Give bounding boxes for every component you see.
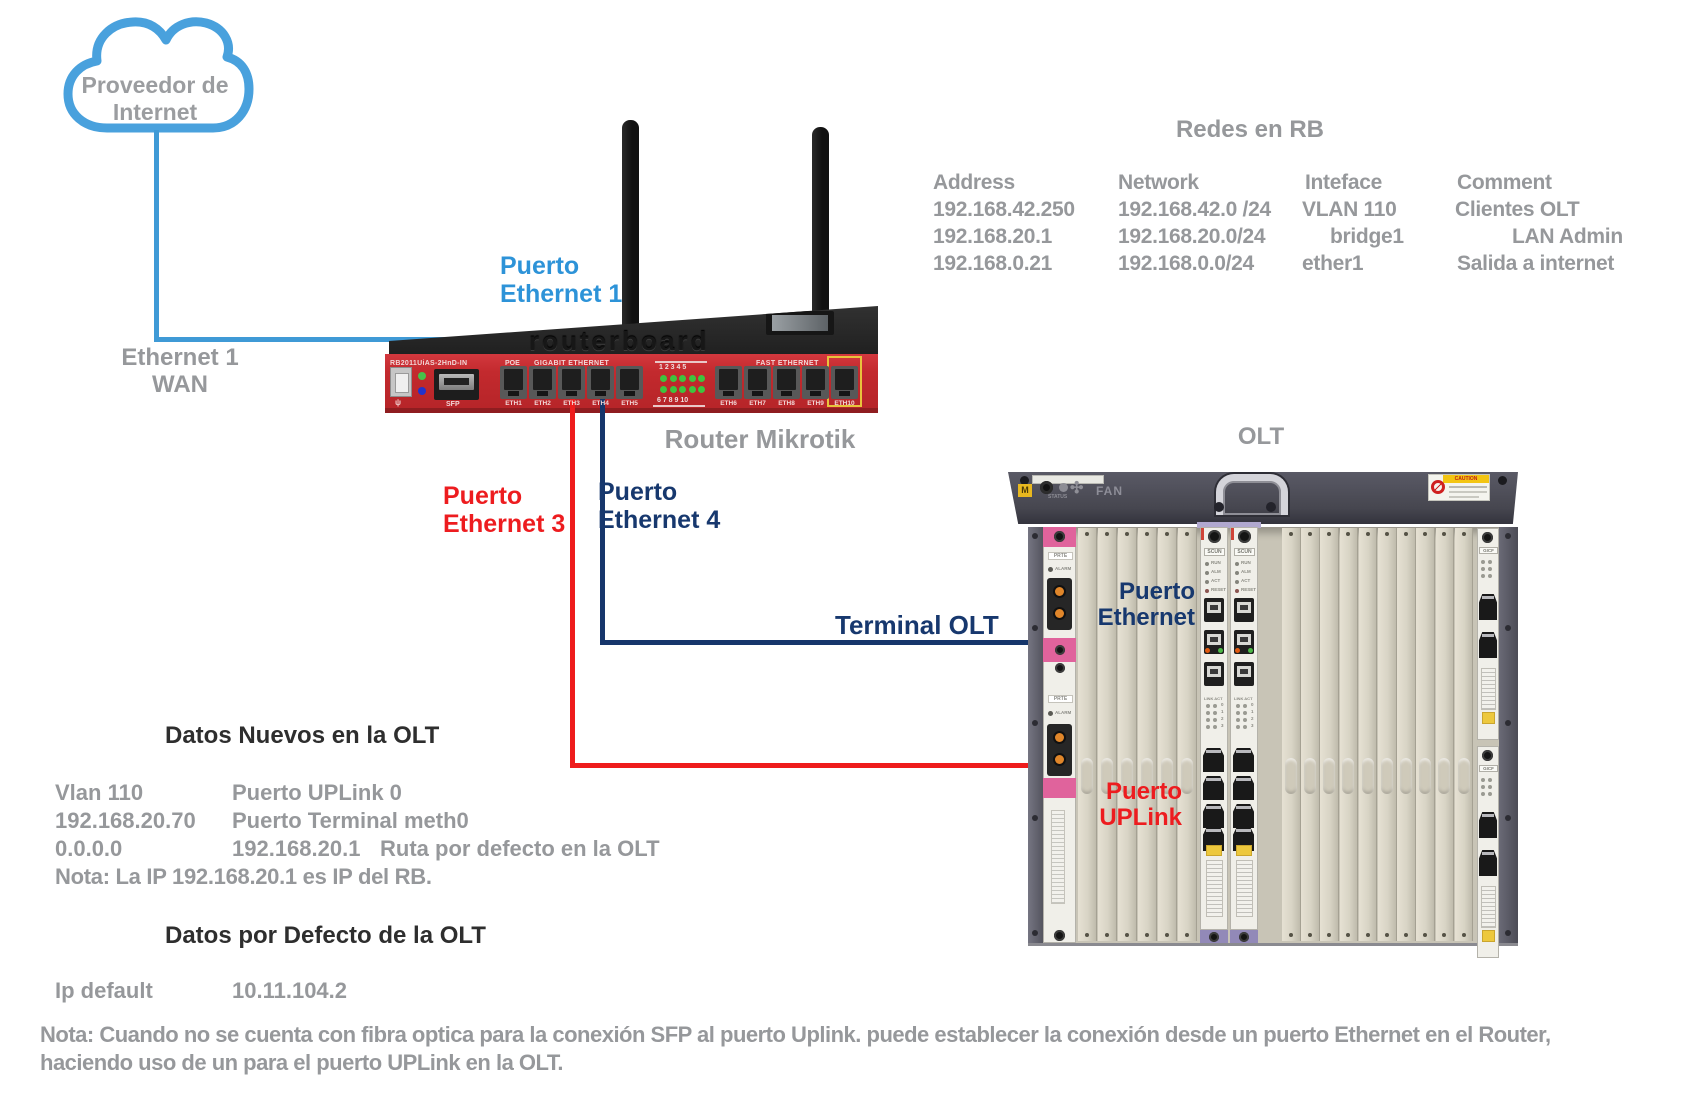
- scun-eth-port-slot: [1240, 637, 1248, 642]
- scun-linkact-label: LINK ACT: [1204, 696, 1223, 701]
- scun-led-label: RESET: [1241, 587, 1256, 592]
- datos-cell-r0c1: Vlan 110: [55, 780, 143, 806]
- scun-bottom-knob: [1209, 932, 1219, 942]
- rail-screw: [1032, 815, 1038, 821]
- router-port-label: ETH10: [827, 400, 862, 407]
- port3-label-line2: Ethernet 3: [443, 510, 565, 539]
- router-led-green: [418, 372, 426, 380]
- slat-screw: [1165, 532, 1169, 536]
- slat-handle: [1323, 758, 1335, 794]
- scun-led-dot: [1205, 580, 1209, 584]
- slat-screw: [1404, 532, 1408, 536]
- scun-led-label: ACT: [1241, 578, 1250, 583]
- gicf-grid-dot: [1488, 567, 1492, 571]
- slat-screw: [1385, 532, 1389, 536]
- slat-screw: [1125, 532, 1129, 536]
- scun-grid-num: 2: [1221, 716, 1224, 721]
- olt-status-led: [1059, 483, 1068, 492]
- slat-screw: [1366, 933, 1370, 937]
- scun-grid-num: 0: [1221, 702, 1224, 707]
- router-led-dot: [670, 375, 677, 382]
- slat-screw: [1462, 532, 1466, 536]
- slat-handle: [1181, 758, 1193, 794]
- slat-screw: [1165, 933, 1169, 937]
- scun-led-dot: [1235, 580, 1239, 584]
- scun-led-dot: [1205, 589, 1209, 593]
- olt-eth-label-line1: Puerto: [1040, 578, 1195, 606]
- gicf-laser-label: [1482, 712, 1495, 724]
- olt-top-bar: M STATUS ✣ FAN CAUTION: [1008, 472, 1518, 524]
- scun-eth-port-slot: [1240, 605, 1248, 610]
- rail-screw: [1505, 533, 1511, 539]
- led-bracket-bottom: [653, 405, 705, 407]
- redes-cell-r2c0: 192.168.0.21: [933, 252, 1052, 276]
- slat-handle: [1458, 758, 1470, 794]
- fast-port-eth7: [744, 366, 771, 399]
- scun-sfp-module: [1233, 804, 1254, 828]
- slat-handle: [1438, 758, 1450, 794]
- olt-logo-mark: M: [1018, 484, 1032, 497]
- scun-sfp-module: [1203, 748, 1224, 772]
- datos-cell-r0c2: Puerto UPLink 0: [232, 780, 402, 806]
- scun-grid-dot: [1243, 718, 1247, 722]
- fast-port-eth8: [773, 366, 800, 399]
- olt-status-label: STATUS: [1048, 494, 1067, 500]
- power-alarm-led: [1048, 711, 1053, 716]
- gicf-sfp-module: [1479, 812, 1497, 838]
- scun-grid-dot: [1243, 711, 1247, 715]
- slat-screw: [1185, 933, 1189, 937]
- scun-grid-dot: [1213, 704, 1217, 708]
- scun-grid-dot: [1236, 725, 1240, 729]
- router-model-label: RB2011UiAS-2HnD-IN: [390, 360, 467, 367]
- router-led-numbers-bottom: 6 7 8 9 10: [657, 397, 688, 404]
- redes-cell-r0c1: 192.168.42.0 /24: [1118, 198, 1271, 222]
- slat-handle: [1362, 758, 1374, 794]
- caution-text: CAUTION: [1443, 475, 1489, 483]
- rail-screw: [1032, 533, 1038, 539]
- router-port-label: ETH5: [612, 400, 647, 407]
- network-diagram: Proveedor de Internet Ethernet 1 WAN Pue…: [0, 0, 1700, 1100]
- slat-handle: [1381, 758, 1393, 794]
- port1-label-line2: Ethernet 1: [500, 280, 622, 309]
- gicf-grid-dot: [1488, 560, 1492, 564]
- scun-tag: [1231, 528, 1234, 540]
- redes-header-2: Inteface: [1305, 171, 1382, 195]
- router-brand-script: MikroTik: [532, 317, 573, 328]
- caution-label: CAUTION: [1428, 474, 1490, 501]
- scun-led-label: ALM: [1211, 569, 1221, 574]
- router-led-dot: [689, 375, 696, 382]
- fan-icon: ✣: [1070, 478, 1083, 498]
- scun-grid-num: 0: [1251, 702, 1254, 707]
- rail-screw: [1505, 625, 1511, 631]
- slat-screw: [1308, 532, 1312, 536]
- olt-blank-slat: [1359, 528, 1378, 941]
- scun-grid-dot: [1213, 711, 1217, 715]
- slat-screw: [1105, 933, 1109, 937]
- slat-screw: [1462, 933, 1466, 937]
- slat-handle: [1285, 758, 1297, 794]
- scun-led-label: RUN: [1211, 560, 1221, 565]
- olt-blank-slat: [1340, 528, 1359, 941]
- olt-blank-slat: [1397, 528, 1416, 941]
- router-antenna-right: [812, 127, 829, 319]
- slat-screw: [1085, 933, 1089, 937]
- scun-label: SCUN: [1234, 548, 1255, 556]
- scun-led-label: RESET: [1211, 587, 1226, 592]
- power-alarm-led: [1048, 567, 1053, 572]
- scun-led-dot: [1235, 589, 1239, 593]
- rail-screw: [1505, 815, 1511, 821]
- scun-grid-dot: [1236, 711, 1240, 715]
- slat-handle: [1400, 758, 1412, 794]
- terminal-olt-label: Terminal OLT: [835, 610, 999, 641]
- slat-screw: [1289, 933, 1293, 937]
- slat-screw: [1289, 532, 1293, 536]
- gicf-grid-dot: [1488, 574, 1492, 578]
- slat-screw: [1145, 933, 1149, 937]
- fast-port-eth9: [802, 366, 829, 399]
- router-led-blue: [418, 387, 426, 395]
- olt-rail-right: [1499, 527, 1518, 945]
- gicf-barcode: [1481, 886, 1496, 928]
- rail-screw: [1505, 930, 1511, 936]
- redes-cell-r0c0: 192.168.42.250: [933, 198, 1075, 222]
- olt-uplink-label-line1: Puerto: [1040, 778, 1182, 806]
- redes-header-0: Address: [933, 171, 1015, 195]
- olt-blank-slat: [1455, 528, 1474, 941]
- scun-eth-port-slot: [1210, 669, 1218, 674]
- datos-nuevos-title: Datos Nuevos en la OLT: [165, 722, 439, 750]
- scun-grid-dot: [1213, 718, 1217, 722]
- power-prte-label: PRTE: [1048, 695, 1073, 703]
- slat-screw: [1105, 532, 1109, 536]
- datos-cell-r2c2: 192.168.20.1: [232, 836, 360, 862]
- fast-port-eth6: [715, 366, 742, 399]
- redes-cell-r1c1: 192.168.20.0/24: [1118, 225, 1265, 249]
- gicf-grid-dot: [1488, 792, 1492, 796]
- scun-eth-port-slot: [1210, 637, 1218, 642]
- gicf-grid-dot: [1481, 574, 1485, 578]
- slat-screw: [1404, 933, 1408, 937]
- gicf-grid-dot: [1481, 560, 1485, 564]
- scun-grid-dot: [1236, 718, 1240, 722]
- olt-eth-label-line2: Ethernet: [1040, 604, 1195, 632]
- power-knob: [1054, 531, 1065, 542]
- redes-cell-r1c2: bridge1: [1330, 225, 1404, 249]
- scun-led-label: ALM: [1241, 569, 1251, 574]
- scun-port-led-green: [1218, 648, 1223, 653]
- bottom-note-line1: Nota: Cuando no se cuenta con fibra opti…: [40, 1022, 1551, 1048]
- scun-grid-num: 2: [1251, 716, 1254, 721]
- eth3-line-vertical: [570, 399, 575, 768]
- router-sfp-label: SFP: [446, 401, 460, 408]
- gicf-sfp-module: [1479, 850, 1497, 876]
- gicf-grid-dot: [1481, 778, 1485, 782]
- gigabit-port-eth5: [616, 366, 643, 399]
- scun-grid-dot: [1206, 718, 1210, 722]
- bottom-note-line2: haciendo uso de un para el puerto UPLink…: [40, 1050, 563, 1076]
- datos-defecto-title: Datos por Defecto de la OLT: [165, 922, 486, 950]
- scun-grid-dot: [1206, 725, 1210, 729]
- olt-jack: [1040, 481, 1053, 494]
- scun-grid-dot: [1206, 711, 1210, 715]
- slat-screw: [1145, 532, 1149, 536]
- olt-handle: [1216, 474, 1288, 515]
- scun-linkact-label: LINK ACT: [1234, 696, 1253, 701]
- scun-eth-port-slot: [1210, 605, 1218, 610]
- gigabit-port-eth2: [529, 366, 556, 399]
- led-bracket-top: [655, 361, 707, 363]
- gicf-label: GICF: [1479, 765, 1498, 772]
- port4-label-line2: Ethernet 4: [598, 506, 720, 535]
- wan-line-vertical: [154, 130, 159, 340]
- redes-cell-r1c3: LAN Admin: [1512, 225, 1623, 249]
- slat-screw: [1185, 532, 1189, 536]
- wan-label-line2: WAN: [105, 371, 255, 399]
- olt-blank-slat: [1416, 528, 1435, 941]
- slat-screw: [1308, 933, 1312, 937]
- gicf-knob: [1482, 750, 1493, 761]
- gicf-grid-dot: [1488, 778, 1492, 782]
- redes-cell-r2c1: 192.168.0.0/24: [1118, 252, 1254, 276]
- scun-led-label: RUN: [1241, 560, 1251, 565]
- rail-screw: [1032, 625, 1038, 631]
- gicf-grid-dot: [1488, 785, 1492, 789]
- router-antenna-left: [622, 120, 639, 332]
- scun-sfp-module: [1203, 804, 1224, 828]
- router-sfp-cage: [434, 369, 479, 400]
- scun-sfp-module: [1233, 748, 1254, 772]
- slat-handle: [1342, 758, 1354, 794]
- scun-laser-label: [1206, 845, 1222, 856]
- datos-cell-r2c3: Ruta por defecto en la OLT: [380, 836, 660, 862]
- gigabit-port-eth1: [500, 366, 527, 399]
- slat-screw: [1385, 933, 1389, 937]
- scun-knob: [1208, 530, 1221, 543]
- ip-default-value: 10.11.104.2: [232, 978, 347, 1004]
- gicf-label: GICF: [1479, 547, 1498, 554]
- router-brand-embossed: routerboard: [529, 326, 709, 357]
- router-usb-port: [390, 367, 412, 397]
- scun-grid-dot: [1243, 725, 1247, 729]
- scun-grid-dot: [1213, 725, 1217, 729]
- gicf-sfp-module: [1479, 594, 1497, 620]
- slat-screw: [1125, 933, 1129, 937]
- scun-grid-num: 3: [1221, 723, 1224, 728]
- scun-tag: [1201, 528, 1204, 540]
- gicf-grid-dot: [1481, 792, 1485, 796]
- redes-cell-r2c2: ether1: [1302, 252, 1363, 276]
- olt-blank-slat: [1282, 528, 1301, 941]
- power-alarm-label: ALARM: [1055, 566, 1071, 571]
- olt-uplink-label-line2: UPLink: [1040, 804, 1182, 832]
- scun-bottom-knob: [1239, 932, 1249, 942]
- router-led-dot: [670, 386, 677, 393]
- olt-caption: OLT: [1221, 423, 1301, 451]
- gicf-grid-dot: [1481, 785, 1485, 789]
- scun-port-led-green: [1248, 648, 1253, 653]
- scun-label: SCUN: [1204, 548, 1225, 556]
- scun-led-label: ACT: [1211, 578, 1220, 583]
- redes-header-1: Network: [1118, 171, 1199, 195]
- usb-icon: ψ: [395, 398, 401, 407]
- ip-default-label: Ip default: [55, 978, 153, 1004]
- datos-cell-r2c1: 0.0.0.0: [55, 836, 122, 862]
- scun-knob: [1238, 530, 1251, 543]
- wan-label-line1: Ethernet 1: [105, 344, 255, 372]
- power-knob: [1055, 645, 1065, 655]
- power-knob: [1055, 663, 1065, 673]
- slat-screw: [1085, 532, 1089, 536]
- port1-label-line1: Puerto: [500, 252, 579, 281]
- gicf-sfp-module: [1479, 632, 1497, 658]
- scun-grid-dot: [1236, 704, 1240, 708]
- router-led-dot: [660, 386, 667, 393]
- olt-blank-slat: [1320, 528, 1339, 941]
- olt-blank-slat: [1378, 528, 1397, 941]
- gigabit-port-eth4: [587, 366, 614, 399]
- redes-cell-r0c3: Clientes OLT: [1455, 198, 1579, 222]
- power-prte-label: PRTE: [1048, 552, 1073, 560]
- scun-eth-port-slot: [1240, 669, 1248, 674]
- datos-cell-r1c1: 192.168.20.70: [55, 808, 196, 834]
- olt-fan-label: FAN: [1096, 484, 1123, 498]
- router-led-dot: [689, 386, 696, 393]
- port3-label-line1: Puerto: [443, 482, 522, 511]
- gicf-laser-label: [1482, 930, 1495, 942]
- scun-grid-dot: [1243, 704, 1247, 708]
- scun-grid-num: 1: [1221, 709, 1224, 714]
- fast-port-eth10: [831, 366, 858, 399]
- scun-barcode: [1206, 860, 1223, 917]
- power-socket: [1055, 755, 1064, 764]
- power-alarm-label: ALARM: [1055, 710, 1071, 715]
- slat-screw: [1366, 532, 1370, 536]
- scun-grid-num: 3: [1251, 723, 1254, 728]
- router-screen: [766, 311, 834, 335]
- redes-table-title: Redes en RB: [1120, 116, 1380, 144]
- rail-screw: [1032, 720, 1038, 726]
- scun-port-led-orange: [1205, 648, 1210, 653]
- scun-sfp-module: [1233, 776, 1254, 800]
- olt-blank-slat: [1301, 528, 1320, 941]
- router-led-dot: [660, 375, 667, 382]
- datos-cell-r1c2: Puerto Terminal meth0: [232, 808, 469, 834]
- scun-laser-label: [1236, 845, 1252, 856]
- scun-barcode: [1236, 860, 1253, 917]
- olt-bottom-edge: [1028, 943, 1518, 946]
- port4-label-line1: Puerto: [598, 478, 677, 507]
- scun-sfp-module: [1203, 776, 1224, 800]
- router-led-numbers-top: 1 2 3 4 5: [659, 364, 686, 371]
- rail-screw: [1505, 720, 1511, 726]
- gicf-grid-dot: [1481, 567, 1485, 571]
- slat-handle: [1419, 758, 1431, 794]
- scun-led-dot: [1235, 562, 1239, 566]
- rail-screw: [1032, 930, 1038, 936]
- gicf-knob: [1482, 532, 1493, 543]
- scun-grid-num: 1: [1251, 709, 1254, 714]
- redes-cell-r2c3: Salida a internet: [1457, 252, 1614, 276]
- scun-led-dot: [1235, 571, 1239, 575]
- olt-blank-slat: [1436, 528, 1455, 941]
- redes-cell-r0c2: VLAN 110: [1302, 198, 1396, 222]
- scun-port-led-orange: [1235, 648, 1240, 653]
- power-knob: [1054, 930, 1065, 941]
- cloud-label-line2: Internet: [75, 99, 235, 126]
- gicf-barcode: [1481, 668, 1496, 710]
- datos-nuevos-nota: Nota: La IP 192.168.20.1 es IP del RB.: [55, 864, 432, 890]
- redes-cell-r1c0: 192.168.20.1: [933, 225, 1052, 249]
- scun-grid-dot: [1206, 704, 1210, 708]
- cloud-label-line1: Proveedor de: [75, 72, 235, 99]
- scun-led-dot: [1205, 571, 1209, 575]
- router-caption: Router Mikrotik: [660, 424, 860, 455]
- gigabit-port-eth3: [558, 366, 585, 399]
- redes-header-3: Comment: [1457, 171, 1552, 195]
- scun-led-dot: [1205, 562, 1209, 566]
- slat-handle: [1304, 758, 1316, 794]
- power-socket: [1055, 733, 1064, 742]
- power-connector: [1047, 724, 1072, 776]
